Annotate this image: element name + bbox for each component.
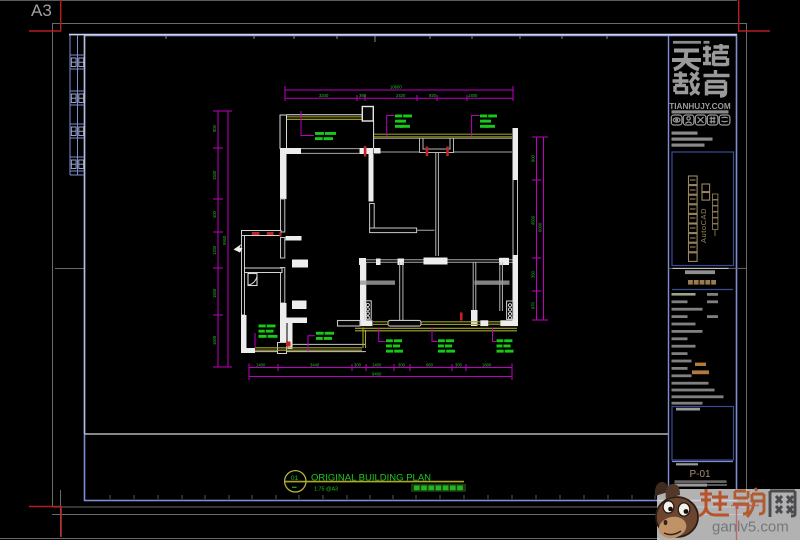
svg-text:1500: 1500 (212, 170, 217, 180)
svg-text:1800: 1800 (482, 362, 492, 367)
svg-text:A3: A3 (31, 1, 52, 20)
svg-text:350: 350 (531, 270, 536, 278)
svg-text:ganlv5.com: ganlv5.com (712, 519, 789, 536)
svg-text:960: 960 (426, 362, 434, 367)
svg-text:1:75 @A3: 1:75 @A3 (314, 487, 338, 493)
svg-text:1400: 1400 (372, 362, 382, 367)
svg-text:3340: 3340 (319, 93, 329, 98)
svg-text:2420: 2420 (396, 93, 406, 98)
svg-text:300: 300 (455, 362, 463, 367)
svg-text:970: 970 (531, 301, 536, 309)
svg-text:5940: 5940 (222, 235, 227, 245)
svg-text:360: 360 (359, 93, 367, 98)
svg-text:3440: 3440 (310, 362, 320, 367)
svg-text:900: 900 (212, 124, 217, 132)
svg-text:300: 300 (398, 362, 406, 367)
svg-text:900: 900 (531, 154, 536, 162)
svg-text:400: 400 (212, 210, 217, 218)
svg-text:1400: 1400 (256, 362, 266, 367)
svg-text:10600: 10600 (390, 85, 402, 90)
svg-text:920: 920 (429, 93, 437, 98)
svg-text:4500: 4500 (531, 215, 536, 225)
svg-text:P-01: P-01 (689, 469, 711, 480)
svg-text:TIANHUJY.COM: TIANHUJY.COM (669, 102, 731, 111)
svg-text:9400: 9400 (372, 371, 382, 376)
svg-text:6000: 6000 (538, 222, 543, 232)
svg-text:1600: 1600 (212, 288, 217, 298)
svg-text:01: 01 (291, 475, 299, 482)
svg-text:AutoCAD: AutoCAD (699, 208, 708, 243)
svg-text:1605: 1605 (212, 335, 217, 345)
svg-text:300: 300 (354, 362, 362, 367)
svg-text:1200: 1200 (212, 245, 217, 255)
svg-text:1400: 1400 (468, 93, 478, 98)
